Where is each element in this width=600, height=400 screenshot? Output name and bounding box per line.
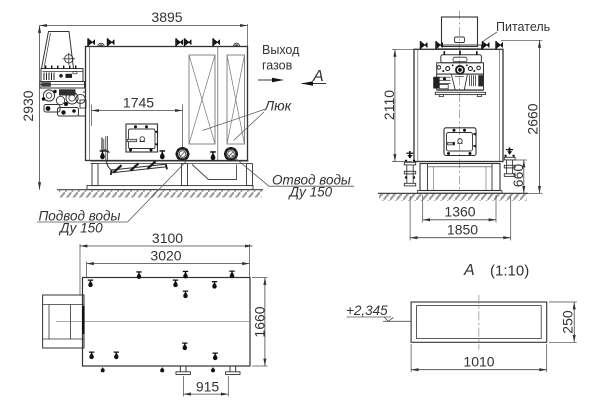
- svg-text:А: А: [312, 68, 324, 85]
- svg-text:3895: 3895: [151, 9, 182, 25]
- svg-text:Ду 150: Ду 150: [288, 185, 333, 200]
- svg-text:660: 660: [510, 164, 526, 188]
- svg-text:1360: 1360: [444, 204, 475, 220]
- svg-text:+2,345: +2,345: [346, 303, 388, 318]
- svg-text:(1:10): (1:10): [490, 263, 529, 280]
- svg-text:Люк: Люк: [264, 98, 293, 114]
- svg-text:Ду 150: Ду 150: [58, 221, 103, 236]
- svg-text:1850: 1850: [447, 222, 478, 238]
- svg-text:3020: 3020: [150, 248, 181, 264]
- svg-text:2110: 2110: [381, 90, 397, 120]
- svg-text:А: А: [463, 262, 475, 279]
- svg-text:1745: 1745: [123, 95, 154, 111]
- svg-text:Выход: Выход: [262, 43, 300, 57]
- svg-text:250: 250: [559, 310, 575, 334]
- svg-text:Питатель: Питатель: [496, 20, 550, 34]
- svg-text:газов: газов: [262, 59, 293, 73]
- svg-text:1660: 1660: [251, 306, 267, 337]
- svg-text:1010: 1010: [463, 354, 494, 370]
- svg-text:2930: 2930: [20, 90, 36, 121]
- svg-text:3100: 3100: [152, 230, 183, 246]
- svg-text:915: 915: [196, 379, 220, 395]
- svg-text:2660: 2660: [525, 103, 541, 134]
